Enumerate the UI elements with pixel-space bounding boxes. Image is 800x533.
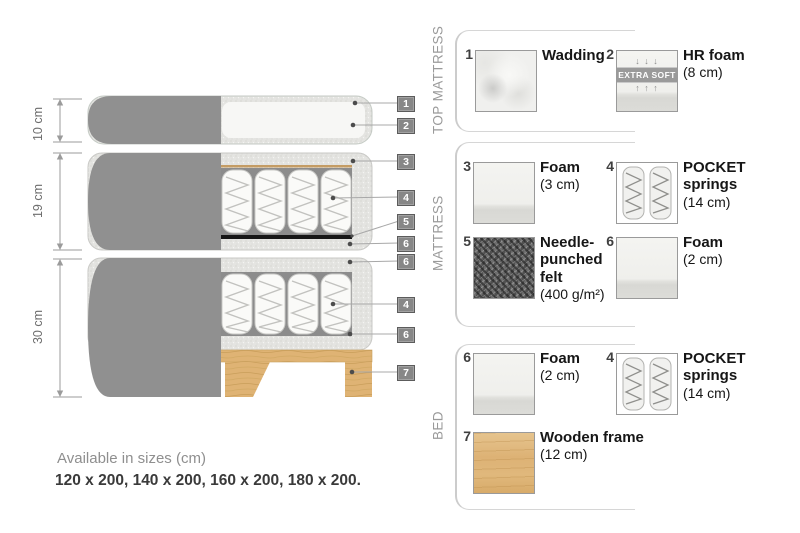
callout-4b: 4 xyxy=(397,297,415,313)
item-name: Wooden frame xyxy=(540,429,690,446)
wooden-slat xyxy=(219,350,372,362)
dimension-label-10cm: 10 cm xyxy=(31,107,45,141)
extra-soft-badge: ↓ ↓ ↓ EXTRA SOFT ↑ ↑ ↑ xyxy=(617,57,677,93)
arrows-up-icon: ↑ ↑ ↑ xyxy=(635,84,659,93)
wooden-leg-left xyxy=(225,362,270,397)
wooden-leg-right xyxy=(345,362,372,397)
pocket-springs-icon xyxy=(617,163,677,223)
available-sizes-list: 120 x 200, 140 x 200, 160 x 200, 180 x 2… xyxy=(55,472,361,490)
item-size: (14 cm) xyxy=(683,385,771,401)
dimension-label-19cm: 19 cm xyxy=(31,184,45,218)
dimension-10cm xyxy=(53,99,82,142)
bed-cross-section-diagram: 10 cm 19 cm 30 cm xyxy=(25,85,415,410)
item-number: 6 xyxy=(458,350,471,365)
legend-item-hr-foam: 2 ↓ ↓ ↓ EXTRA SOFT ↑ ↑ ↑ HR foam (8 cm) xyxy=(601,47,771,112)
callout-7: 7 xyxy=(397,365,415,381)
section-title-bed: BED xyxy=(428,344,448,508)
swatch-felt xyxy=(473,237,535,299)
section-title-top-mattress: TOP MATTRESS xyxy=(428,30,448,130)
item-number: 2 xyxy=(601,47,614,62)
bed-section xyxy=(88,258,372,397)
item-size: (14 cm) xyxy=(683,194,771,210)
fabric-cover xyxy=(88,258,221,397)
callout-3: 3 xyxy=(397,154,415,170)
fabric-cover xyxy=(88,153,221,250)
swatch-wadding xyxy=(475,50,537,112)
swatch-foam xyxy=(473,162,535,224)
dimension-30cm xyxy=(53,259,82,397)
legend-item-pocket-springs-bed: 4 POCKET springs (14 cm) xyxy=(601,350,771,415)
item-size: (8 cm) xyxy=(683,64,771,80)
legend-item-pocket-springs: 4 POCKET springs (14 cm) xyxy=(601,159,771,224)
dimension-label-30cm: 30 cm xyxy=(31,310,45,344)
callout-6a: 6 xyxy=(397,236,415,252)
swatch-wood xyxy=(473,432,535,494)
item-name: Foam xyxy=(683,234,771,251)
item-number: 7 xyxy=(458,429,471,444)
dimension-19cm xyxy=(53,153,82,250)
swatch-pocket-springs xyxy=(616,353,678,415)
item-number: 4 xyxy=(601,350,614,365)
swatch-foam xyxy=(473,353,535,415)
mattress-section xyxy=(88,153,372,250)
callout-6b: 6 xyxy=(397,254,415,270)
extra-soft-label: EXTRA SOFT xyxy=(616,67,678,83)
tan-layer-line xyxy=(219,165,352,168)
swatch-foam xyxy=(616,237,678,299)
legend-item-wooden-frame: 7 Wooden frame (12 cm) xyxy=(458,429,690,494)
top-mattress-section xyxy=(88,96,372,144)
item-number: 5 xyxy=(458,234,471,249)
callout-6c: 6 xyxy=(397,327,415,343)
hr-foam-core xyxy=(222,102,365,138)
item-name: POCKET springs xyxy=(683,350,771,385)
item-number: 6 xyxy=(601,234,614,249)
arrows-down-icon: ↓ ↓ ↓ xyxy=(635,57,659,66)
item-number: 4 xyxy=(601,159,614,174)
item-number: 1 xyxy=(460,47,473,62)
swatch-pocket-springs xyxy=(616,162,678,224)
callout-1: 1 xyxy=(397,96,415,112)
fabric-cover xyxy=(88,96,221,144)
item-name: HR foam xyxy=(683,47,771,64)
section-title-mattress: MATTRESS xyxy=(428,142,448,325)
swatch-hr-foam: ↓ ↓ ↓ EXTRA SOFT ↑ ↑ ↑ xyxy=(616,50,678,112)
item-size: (12 cm) xyxy=(540,446,690,462)
callout-2: 2 xyxy=(397,118,415,134)
item-size: (2 cm) xyxy=(683,251,771,267)
callout-5: 5 xyxy=(397,214,415,230)
item-name: POCKET springs xyxy=(683,159,771,194)
felt-layer xyxy=(219,235,352,239)
legend-item-foam-2cm: 6 Foam (2 cm) xyxy=(601,234,771,299)
bed-construction-infographic: 10 cm 19 cm 30 cm xyxy=(0,0,800,533)
callout-4: 4 xyxy=(397,190,415,206)
available-sizes-title: Available in sizes (cm) xyxy=(57,450,206,467)
pocket-springs-icon xyxy=(617,354,677,414)
item-number: 3 xyxy=(458,159,471,174)
